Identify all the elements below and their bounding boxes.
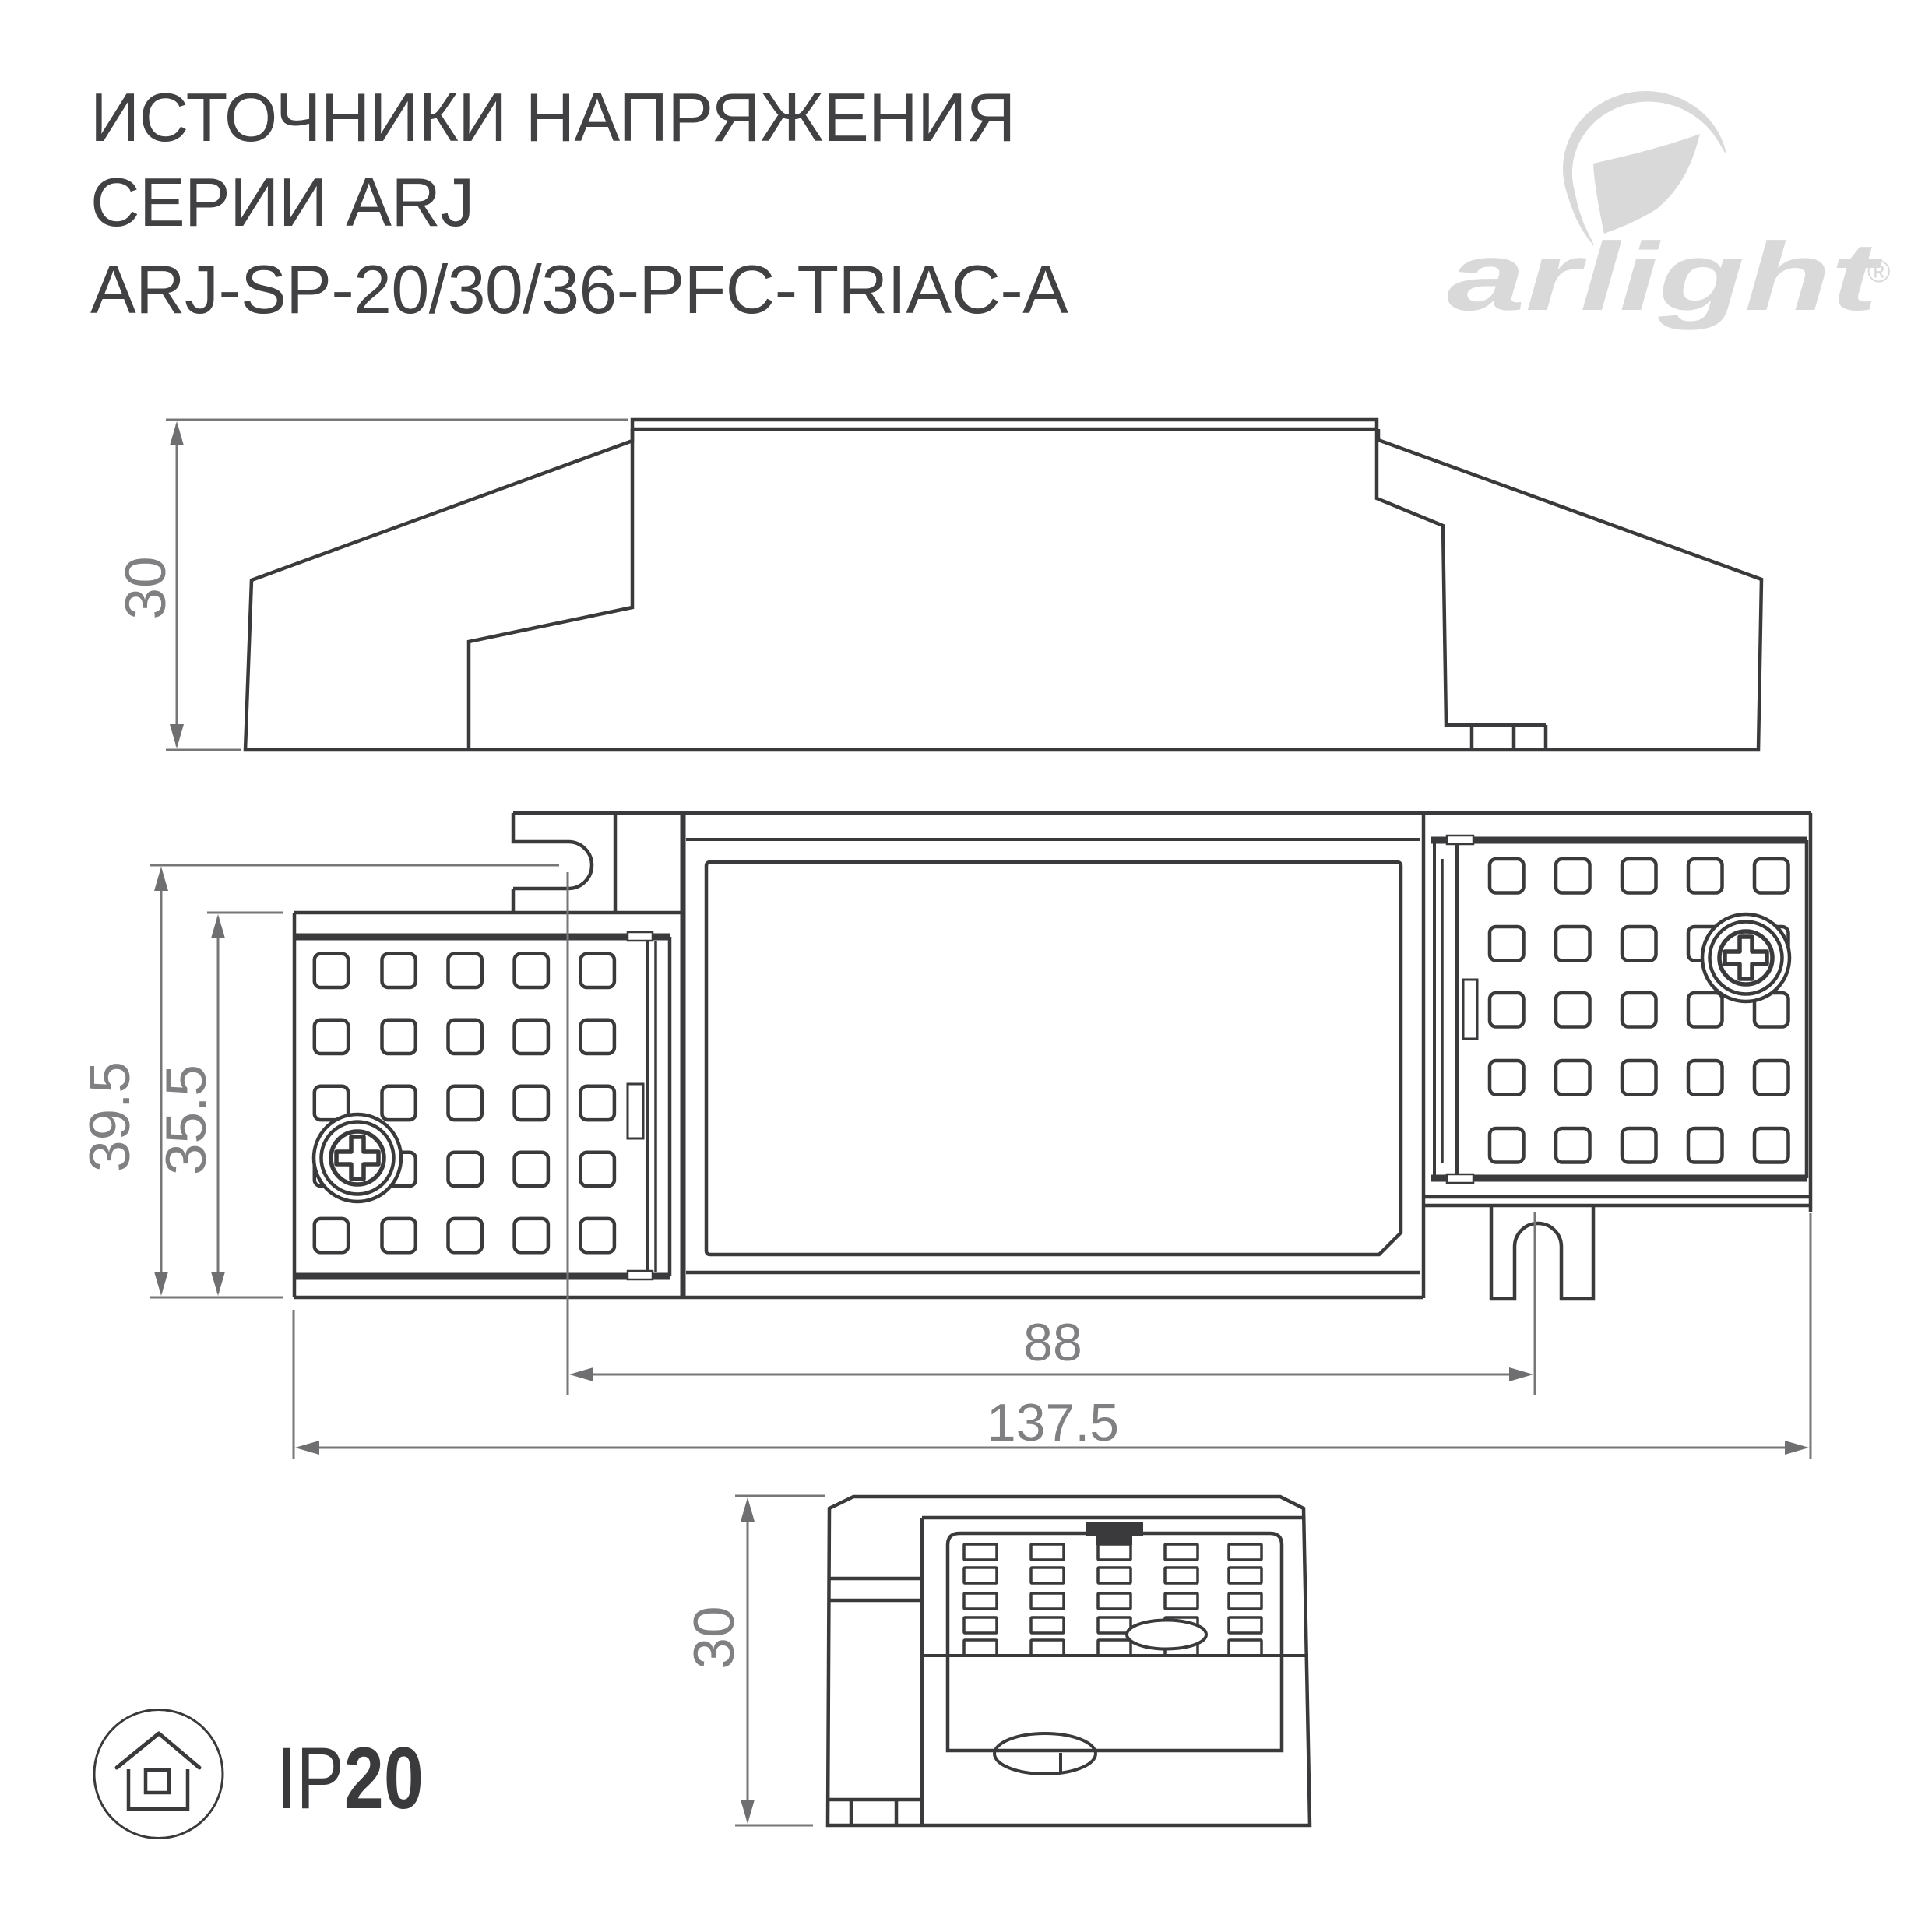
svg-text:88: 88 [1023,1313,1082,1372]
svg-text:30: 30 [683,1606,746,1669]
svg-text:IP20: IP20 [276,1729,424,1827]
svg-text:30: 30 [114,556,178,619]
svg-text:ИСТОЧНИКИ НАПРЯЖЕНИЯ: ИСТОЧНИКИ НАПРЯЖЕНИЯ [90,79,1015,156]
svg-text:®: ® [1867,255,1890,289]
svg-text:ARJ-SP-20/30/36-PFC-TRIAC-A: ARJ-SP-20/30/36-PFC-TRIAC-A [90,251,1068,328]
svg-text:arlight: arlight [1447,223,1882,330]
svg-text:137.5: 137.5 [987,1393,1119,1452]
svg-text:35.5: 35.5 [155,1065,218,1175]
svg-text:СЕРИИ ARJ: СЕРИИ ARJ [90,164,474,241]
svg-text:39.5: 39.5 [79,1061,142,1172]
